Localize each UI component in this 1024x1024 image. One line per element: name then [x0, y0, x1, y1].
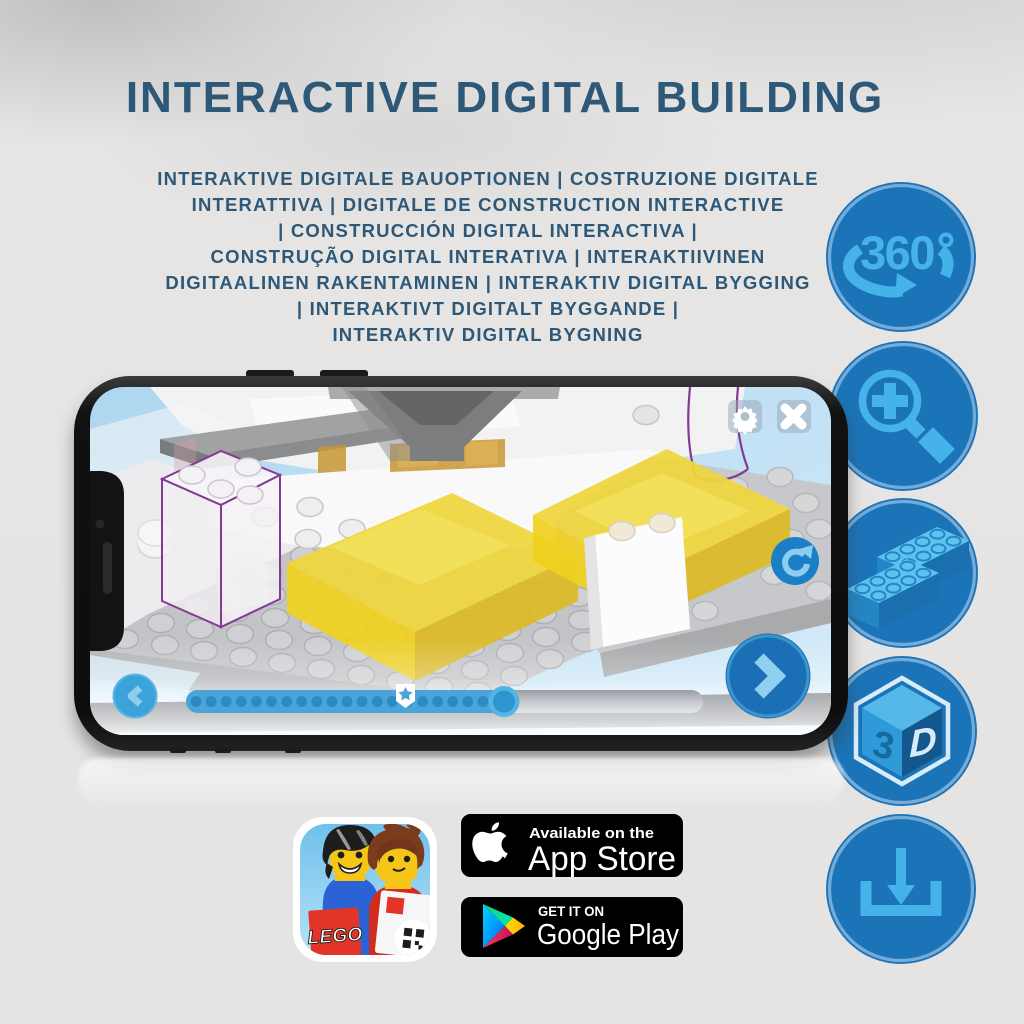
svg-text:LEGO: LEGO: [307, 924, 363, 949]
svg-text:3: 3: [872, 722, 893, 769]
svg-text:Google Play: Google Play: [537, 919, 679, 951]
svg-text:App Store: App Store: [528, 840, 676, 878]
svg-text:GET IT ON: GET IT ON: [538, 904, 604, 919]
svg-text:360: 360: [860, 226, 934, 279]
svg-text:D: D: [909, 718, 936, 766]
